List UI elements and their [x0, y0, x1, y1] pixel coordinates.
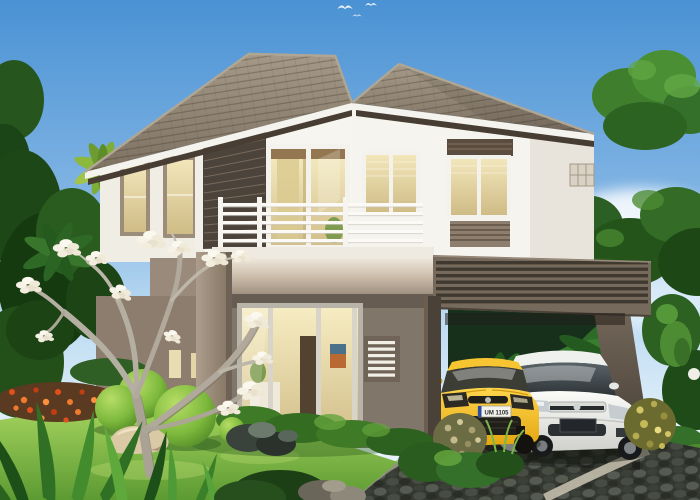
- garden-lamp-globe: [688, 368, 700, 380]
- window-right-2: [447, 155, 511, 219]
- honda-badge: [574, 404, 581, 411]
- side-wall-vent: [570, 164, 594, 186]
- white-slat-accent: [364, 336, 400, 382]
- seat-badge: [485, 397, 491, 403]
- slat-accent-above-window: [447, 139, 513, 156]
- balcony-railing: [218, 197, 428, 249]
- sedan-license-plate: [560, 419, 596, 432]
- hatchback-license-plate: UM 1105: [478, 406, 511, 417]
- slat-accent-below-window: [450, 221, 510, 247]
- house-rendering-scene: UM 1105: [0, 0, 700, 500]
- carport-soffit-shadow: [445, 313, 625, 325]
- balcony-sliding-door: [266, 144, 350, 250]
- wall-right-side: [530, 132, 594, 262]
- license-plate-text: UM 1105: [484, 411, 509, 417]
- house-scene-illustration: UM 1105: [0, 0, 700, 500]
- lintel-beam: [232, 258, 433, 296]
- sedan-mirror: [609, 383, 619, 390]
- window-left-2: [163, 156, 197, 238]
- yellow-shrub: [624, 398, 676, 450]
- hatchback-wheel-right: [514, 434, 534, 454]
